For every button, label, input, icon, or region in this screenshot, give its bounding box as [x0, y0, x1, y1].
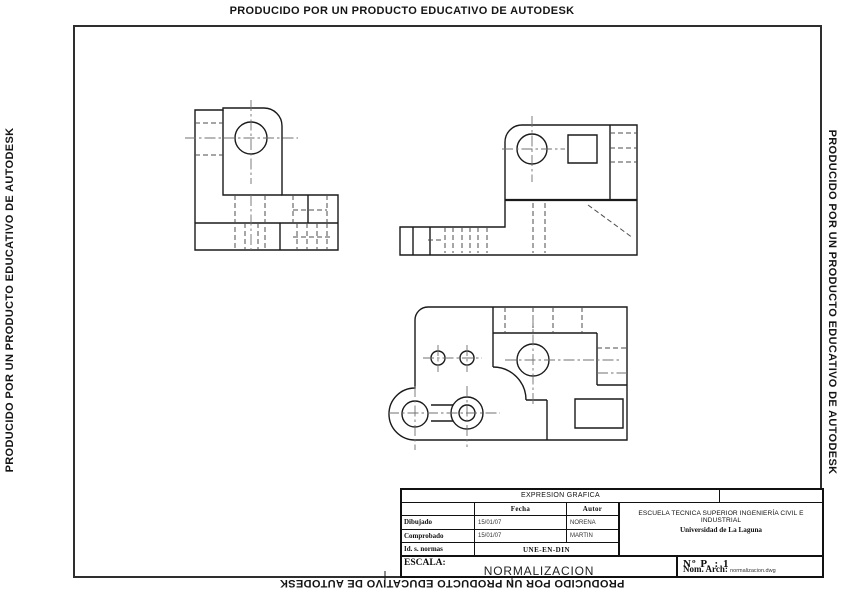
- file-name: normalizacion.dwg: [730, 568, 776, 574]
- autor-comprobado: MARTIN: [567, 530, 620, 543]
- side-view: [400, 116, 637, 255]
- school-box: ESCUELA TECNICA SUPERIOR INGENIERÍA CIVI…: [620, 503, 822, 557]
- column-autor: Autor: [567, 503, 620, 516]
- label-empty-cell: [402, 503, 475, 516]
- school-name: ESCUELA TECNICA SUPERIOR INGENIERÍA CIVI…: [620, 510, 822, 524]
- fecha-dibujado: 15/01/07: [475, 516, 567, 530]
- autor-dibujado: NORENA: [567, 516, 620, 530]
- drawing-title: NORMALIZACION: [402, 564, 676, 576]
- title-block-header: EXPRESION GRAFICA: [402, 490, 720, 503]
- norms-value: UNE-EN-DIN: [475, 543, 620, 557]
- title-block-header-spacer: [720, 490, 822, 503]
- scale-title-cell: ESCALA: NORMALIZACION: [402, 557, 678, 576]
- front-view: [185, 100, 338, 250]
- fecha-comprobado: 15/01/07: [475, 530, 567, 543]
- plan-view: [388, 307, 627, 450]
- label-dibujado: Dibujado: [402, 516, 475, 530]
- cad-plot-page: PRODUCIDO POR UN PRODUCTO EDUCATIVO DE A…: [0, 0, 848, 599]
- sheet-cell: Nº P. : 1 Nom. Arch: normalizacion.dwg: [678, 557, 822, 576]
- file-row: Nom. Arch: normalizacion.dwg: [683, 564, 776, 574]
- file-label: Nom. Arch:: [683, 564, 728, 574]
- column-fecha: Fecha: [475, 503, 567, 516]
- university-name: Universidad de La Laguna: [620, 526, 822, 534]
- label-id-normas: Id. s. normas: [402, 543, 475, 557]
- title-block: EXPRESION GRAFICA Dibujado Comprobado Id…: [400, 488, 824, 578]
- label-comprobado: Comprobado: [402, 530, 475, 543]
